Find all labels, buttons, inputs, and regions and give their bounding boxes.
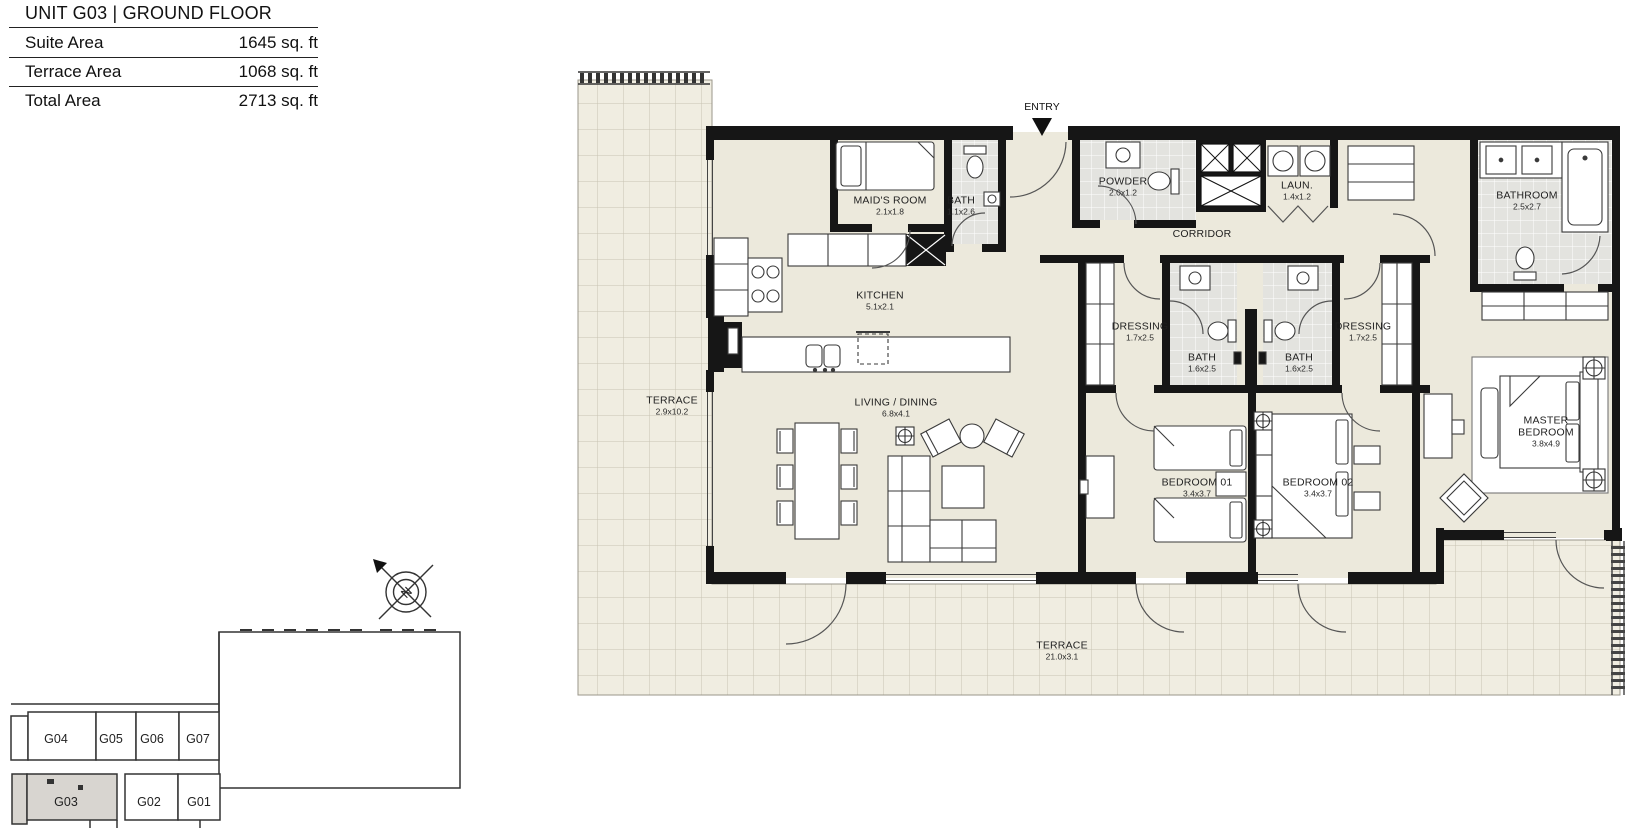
keyplan-unit-g04-label: G04 — [44, 732, 68, 746]
nightstand-icon — [1354, 446, 1380, 464]
keyplan-unit-g03-label: G03 — [54, 795, 78, 809]
toilet-icon — [964, 146, 986, 154]
label-bedroom-02: BEDROOM 02 3.4x3.7 — [1283, 477, 1354, 498]
keyplan-unit-g02-label: G02 — [137, 795, 161, 809]
label-terrace-bottom: TERRACE 21.0x3.1 — [1036, 640, 1088, 661]
bench-icon — [1481, 388, 1498, 458]
label-bath-right: BATH 1.6x2.5 — [1285, 352, 1313, 373]
keyplan-unit-g01-label: G01 — [187, 795, 211, 809]
label-kitchen: KITCHEN 5.1x2.1 — [856, 290, 904, 311]
keyplan-unit-g05-label: G05 — [99, 732, 123, 746]
side-table-icon — [960, 424, 984, 448]
label-corridor: CORRIDOR — [1173, 229, 1232, 241]
label-dressing-right: DRESSING 1.7x2.5 — [1335, 321, 1391, 342]
tv-unit — [1424, 394, 1452, 458]
label-bedroom-01: BEDROOM 01 3.4x3.7 — [1162, 477, 1233, 498]
label-maid-bath: BATH 1.1x2.6 — [947, 195, 975, 216]
label-laundry: LAUN. 1.4x1.2 — [1281, 180, 1313, 201]
dining-table-icon — [795, 423, 839, 539]
label-terrace-side: TERRACE 2.9x10.2 — [646, 395, 698, 416]
key-plan — [11, 630, 460, 828]
keyplan-unit-g07-label: G07 — [186, 732, 210, 746]
kitchen-island — [742, 337, 1010, 372]
label-living-dining: LIVING / DINING 6.8x4.1 — [855, 397, 938, 418]
keyplan-unit-g06-label: G06 — [140, 732, 164, 746]
keyplan-strip — [12, 774, 27, 824]
floor-plan-drawing: N — [0, 0, 1642, 828]
label-dressing-left: DRESSING 1.7x2.5 — [1112, 321, 1168, 342]
floorplan-page: UNIT G03 | GROUND FLOOR Suite Area 1645 … — [0, 0, 1642, 828]
label-powder: POWDER 2.0x1.2 — [1099, 176, 1147, 197]
entry-label: ENTRY — [1024, 101, 1059, 113]
label-master-bedroom: MASTER BEDROOM 3.8x4.9 — [1506, 415, 1586, 448]
label-bathroom: BATHROOM 2.5x2.7 — [1496, 190, 1558, 211]
keyplan-building-outline — [219, 632, 460, 788]
label-bath-left: BATH 1.6x2.5 — [1188, 352, 1216, 373]
coffee-table-icon — [942, 466, 984, 508]
stove-icon — [748, 258, 782, 312]
north-compass-icon: N — [373, 559, 433, 619]
label-maids-room: MAID'S ROOM 2.1x1.8 — [853, 195, 926, 216]
sofa-icon — [888, 456, 930, 562]
kitchen-sink-icon — [806, 345, 822, 367]
